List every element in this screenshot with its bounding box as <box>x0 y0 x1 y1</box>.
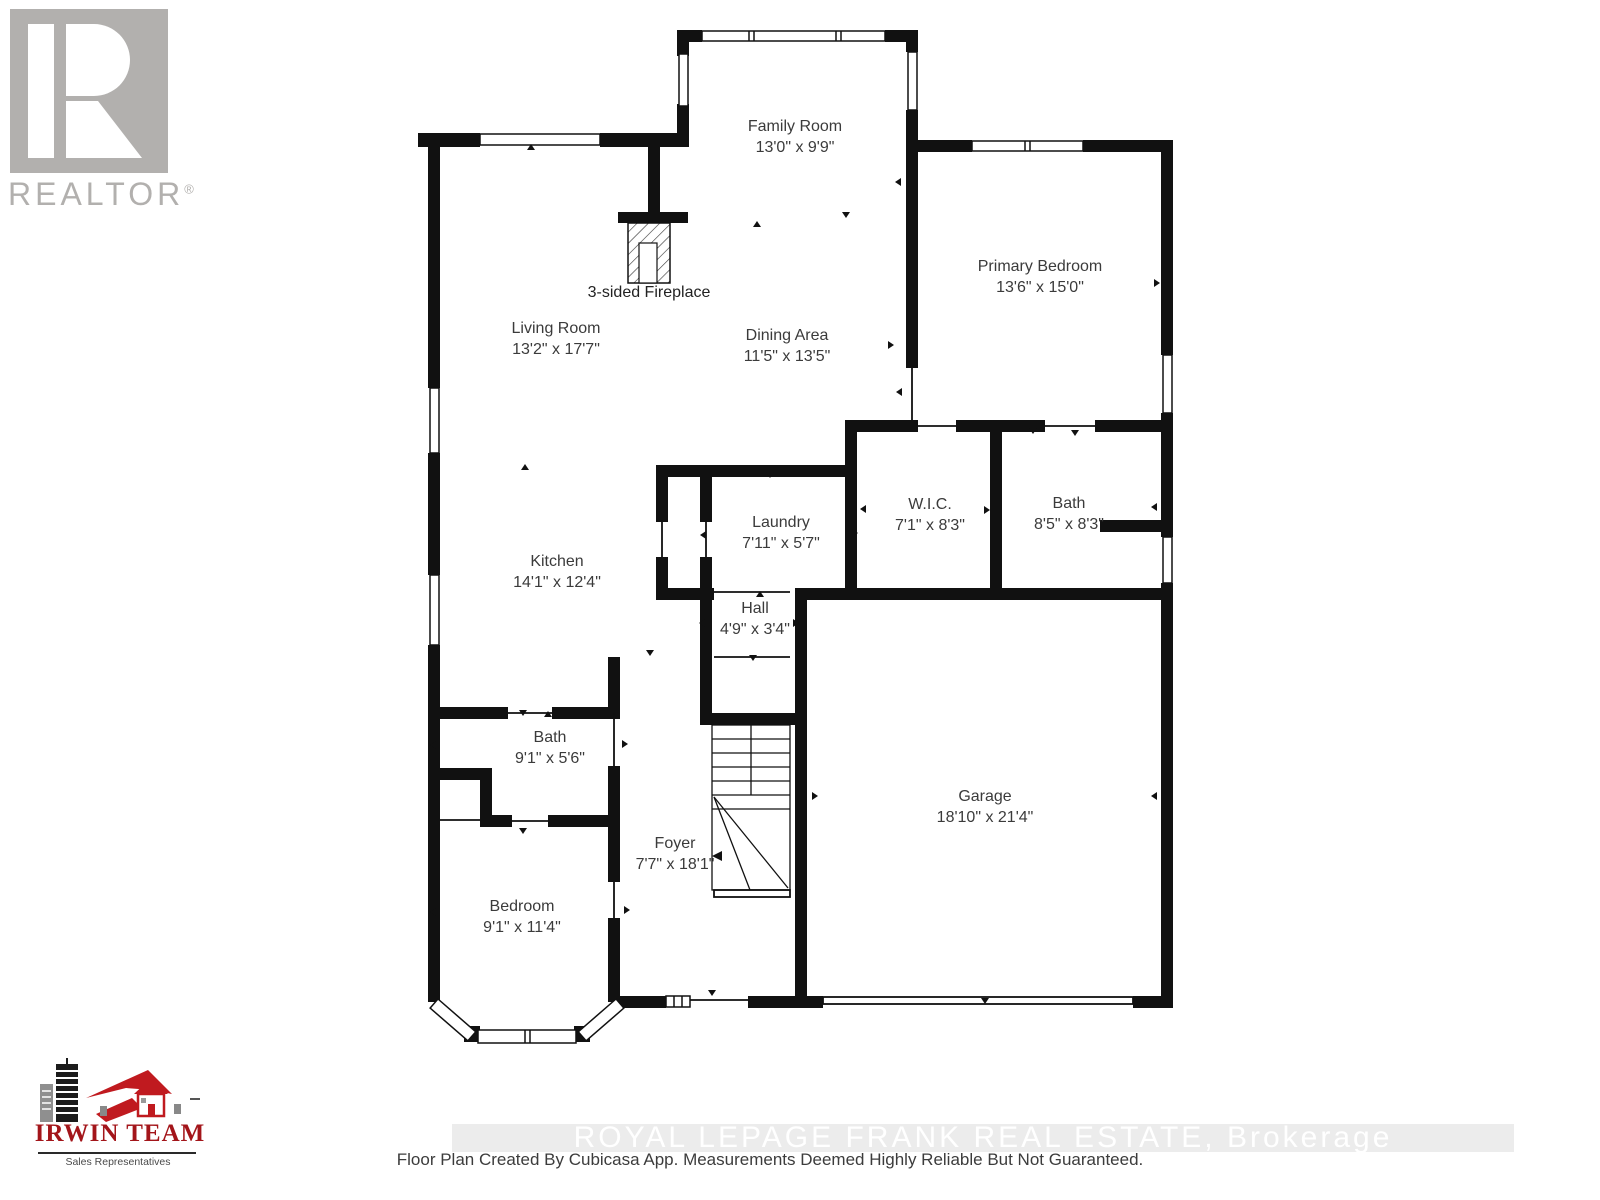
room-label-garage: Garage 18'10" x 21'4" <box>937 786 1034 828</box>
room-label-bedroom: Bedroom 9'1" x 11'4" <box>483 896 561 938</box>
room-dims: 13'6" x 15'0" <box>978 277 1102 298</box>
room-label-family-room: Family Room 13'0" x 9'9" <box>748 116 842 158</box>
room-dims: 9'1" x 11'4" <box>483 917 561 938</box>
room-name: Hall <box>720 598 790 619</box>
room-label-primary-bedroom: Primary Bedroom 13'6" x 15'0" <box>978 256 1102 298</box>
room-label-kitchen: Kitchen 14'1" x 12'4" <box>513 551 601 593</box>
staircase <box>712 725 790 890</box>
room-label-wic: W.I.C. 7'1" x 8'3" <box>895 494 965 536</box>
room-label-living-room: Living Room 13'2" x 17'7" <box>512 318 601 360</box>
brokerage-watermark-band: ROYAL LEPAGE FRANK REAL ESTATE, Brokerag… <box>452 1124 1514 1152</box>
room-dims: 13'0" x 9'9" <box>748 137 842 158</box>
room-label-main-bath: Bath 9'1" x 5'6" <box>515 727 585 769</box>
room-name: Dining Area <box>744 325 831 346</box>
room-label-laundry: Laundry 7'11" x 5'7" <box>742 512 820 554</box>
room-dims: 13'2" x 17'7" <box>512 339 601 360</box>
room-name: Living Room <box>512 318 601 339</box>
stair-landing-edge <box>714 890 790 897</box>
fireplace <box>618 147 688 283</box>
room-name: Bedroom <box>483 896 561 917</box>
room-label-ensuite-bath: Bath 8'5" x 8'3" <box>1034 493 1104 535</box>
room-name: Kitchen <box>513 551 601 572</box>
irwin-team-wordmark: IRWIN TEAM <box>30 1120 210 1148</box>
room-label-dining-area: Dining Area 11'5" x 13'5" <box>744 325 831 367</box>
room-name: W.I.C. <box>895 494 965 515</box>
room-dims: 7'7" x 18'1" <box>636 854 715 875</box>
registered-trademark-icon: ® <box>184 181 194 196</box>
room-name: Laundry <box>742 512 820 533</box>
realtor-logo-icon <box>10 9 168 173</box>
room-label-hall: Hall 4'9" x 3'4" <box>720 598 790 640</box>
floor-plan-page: Family Room 13'0" x 9'9" Primary Bedroom… <box>0 0 1600 1200</box>
garage-door <box>823 997 1133 1004</box>
room-dims: 18'10" x 21'4" <box>937 807 1034 828</box>
room-name: Foyer <box>636 833 715 854</box>
irwin-team-graphic-icon <box>40 1058 220 1122</box>
room-dims: 7'1" x 8'3" <box>895 515 965 536</box>
room-name: Primary Bedroom <box>978 256 1102 277</box>
room-dims: 9'1" x 5'6" <box>515 748 585 769</box>
room-name: Bath <box>1034 493 1104 514</box>
room-dims: 4'9" x 3'4" <box>720 619 790 640</box>
room-name: Garage <box>937 786 1034 807</box>
disclaimer-text: Floor Plan Created By Cubicasa App. Meas… <box>0 1150 1540 1170</box>
room-dims: 7'11" x 5'7" <box>742 533 820 554</box>
realtor-r-glyph <box>10 9 168 173</box>
floor-plan-drawing <box>0 0 1600 1200</box>
room-dims: 8'5" x 8'3" <box>1034 514 1104 535</box>
room-name: Bath <box>515 727 585 748</box>
room-dims: 14'1" x 12'4" <box>513 572 601 593</box>
room-name: Family Room <box>748 116 842 137</box>
room-label-foyer: Foyer 7'7" x 18'1" <box>636 833 715 875</box>
room-dims: 11'5" x 13'5" <box>744 346 831 367</box>
fireplace-label: 3-sided Fireplace <box>588 284 711 302</box>
realtor-wordmark: REALTOR® <box>8 176 198 213</box>
